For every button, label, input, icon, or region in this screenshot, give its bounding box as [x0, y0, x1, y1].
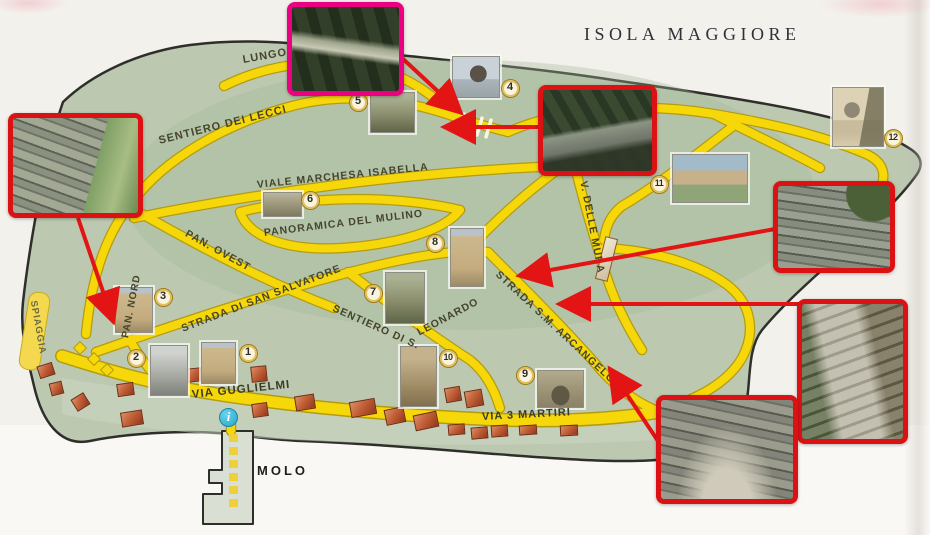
- street-label-strada-di-san-salvatore: STRADA DI SAN SALVATORE: [180, 263, 342, 334]
- street-label-pan-ovest: PAN. OVEST: [183, 229, 252, 273]
- site-marker-8: 8: [426, 234, 445, 253]
- red-arrow-line: [523, 229, 775, 275]
- site-marker-2: 2: [127, 349, 146, 368]
- village-building: [491, 424, 509, 437]
- village-building: [448, 423, 466, 435]
- map-photo-site-11: [672, 154, 748, 203]
- street-label-sentiero-dei-lecci: SENTIERO DEI LECCI: [158, 104, 288, 147]
- village-building: [49, 381, 65, 397]
- map-photo-site-8: [450, 228, 484, 287]
- village-building: [349, 398, 377, 418]
- village-building: [413, 411, 440, 432]
- inset-wall-north: [538, 85, 657, 176]
- site-marker-12: 12: [884, 129, 903, 148]
- map-photo-site-12: [832, 87, 884, 147]
- map-photo-site-2: [150, 345, 188, 396]
- site-marker-1: 1: [239, 344, 258, 363]
- island-map: ISOLA MAGGIORE i LUNGOSENTIERO DEI LECCI…: [0, 0, 930, 535]
- map-photo-site-9: [537, 370, 584, 408]
- molo-pier: [203, 431, 253, 524]
- street-label-molo: MOLO: [257, 464, 308, 477]
- site-marker-11: 11: [650, 175, 669, 194]
- village-building: [36, 362, 55, 379]
- inset-wall-northwest: [8, 113, 143, 218]
- inset-wall-east: [773, 181, 895, 273]
- map-photo-site-4: [452, 56, 500, 98]
- village-building: [471, 426, 489, 439]
- site-marker-7: 7: [364, 284, 383, 303]
- red-arrow-line: [612, 372, 662, 447]
- page-edge: [904, 0, 930, 535]
- street-label-leonardo: LEONARDO: [416, 297, 481, 338]
- inset-wall-top-photo: [292, 7, 399, 91]
- street-label-spiaggia: SPIAGGIA: [28, 300, 47, 355]
- street-label-via-3-martiri: VIA 3 MARTIRI: [482, 407, 571, 423]
- village-building: [519, 424, 538, 435]
- inset-wall-east-photo: [778, 186, 890, 268]
- street-label-strada-sm-arcangelo: STRADA S.M. ARCANGELO: [493, 269, 616, 385]
- village-building: [120, 409, 144, 427]
- site-marker-4: 4: [501, 79, 520, 98]
- map-title: ISOLA MAGGIORE: [584, 24, 801, 45]
- village-building: [384, 406, 407, 426]
- scan-artifact: [0, 0, 68, 14]
- steps-hatching: [459, 114, 491, 137]
- molo-dashes: [229, 434, 238, 507]
- site-marker-10: 10: [439, 349, 458, 368]
- site-marker-6: 6: [301, 191, 320, 210]
- site-marker-9: 9: [516, 366, 535, 385]
- map-photo-site-5: [370, 92, 415, 133]
- inset-wall-south: [656, 395, 798, 504]
- village-building: [70, 392, 90, 412]
- info-icon: i: [219, 408, 238, 427]
- village-building: [116, 382, 135, 397]
- village-building: [464, 389, 485, 409]
- village-building: [444, 386, 462, 404]
- map-photo-site-6: [263, 192, 302, 217]
- village-building: [250, 365, 268, 383]
- street-label-lungo: LUNGO: [242, 47, 288, 66]
- street-label-v-delle-mura: V. DELLE MURA: [578, 180, 606, 274]
- inset-path-southeast-photo: [802, 304, 903, 439]
- map-photo-site-7: [385, 272, 425, 324]
- inset-wall-south-photo: [661, 400, 793, 499]
- dashed-path: [74, 342, 114, 377]
- inset-wall-northwest-photo: [13, 118, 138, 213]
- map-photo-site-10: [400, 346, 437, 407]
- village-building: [560, 425, 579, 437]
- scan-artifact: [820, 0, 930, 18]
- map-photo-site-1: [201, 342, 236, 384]
- inset-wall-north-photo: [543, 90, 652, 171]
- inset-wall-top: [287, 2, 404, 96]
- village-building: [251, 402, 269, 418]
- red-arrow-line: [78, 218, 112, 318]
- site-marker-3: 3: [154, 288, 173, 307]
- street-label-viale-marchesa-isabella: VIALE MARCHESA ISABELLA: [256, 162, 429, 190]
- inset-path-southeast: [797, 299, 908, 444]
- village-building: [294, 394, 316, 412]
